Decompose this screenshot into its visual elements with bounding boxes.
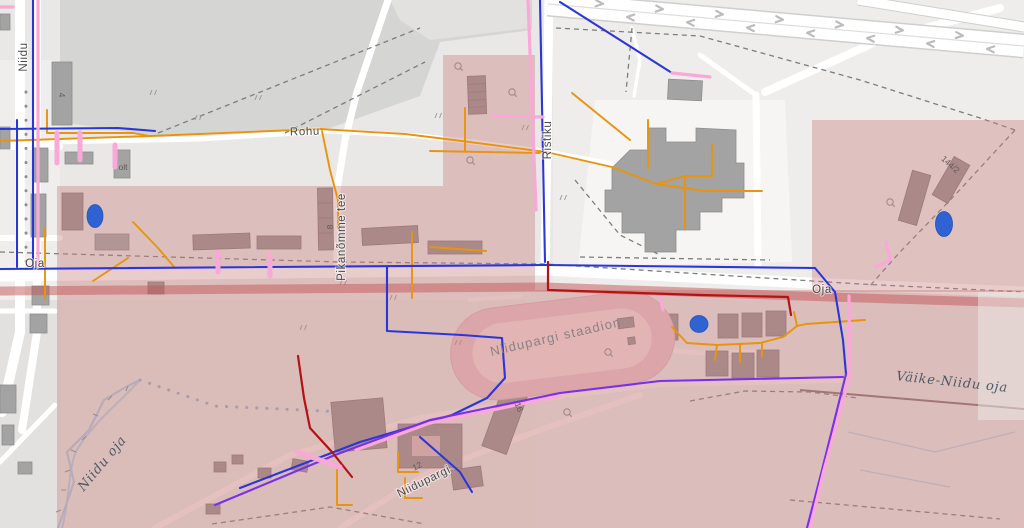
street-label-oja-west: Oja bbox=[25, 258, 45, 270]
map-marker-west[interactable] bbox=[87, 205, 103, 228]
street-label-ristiku: Ristiku bbox=[542, 121, 554, 160]
label-olt: olt bbox=[119, 162, 129, 172]
housenumber-8: 8 bbox=[325, 224, 335, 229]
street-label-rohu: Rohu bbox=[290, 125, 320, 138]
zone-gap bbox=[978, 292, 1024, 420]
map-viewport[interactable]: Niidu Rohu Ristiku Pikanõmme tee Oja Oja… bbox=[0, 0, 1024, 528]
street-label-oja-east: Oja bbox=[812, 284, 832, 296]
map-canvas[interactable]: Niidu Rohu Ristiku Pikanõmme tee Oja Oja… bbox=[0, 0, 1024, 528]
street-label-pikanomme-tee: Pikanõmme tee bbox=[336, 193, 348, 281]
map-marker-cluster[interactable] bbox=[690, 316, 708, 333]
street-label-niidu: Niidu bbox=[18, 42, 30, 71]
map-marker-east[interactable] bbox=[936, 212, 953, 237]
housenumber-4: 4 bbox=[57, 93, 67, 98]
